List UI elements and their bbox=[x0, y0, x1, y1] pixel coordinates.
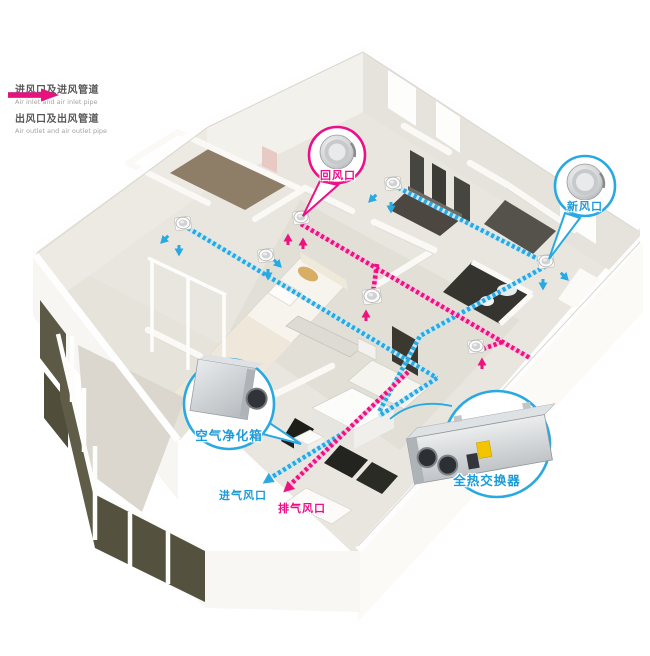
label-air-purifier-box: 空气净化箱 bbox=[195, 425, 263, 444]
legend-outlet-label-zh: 出风口及出风管道 bbox=[15, 115, 107, 126]
legend-outlet-label-en: Air outlet and air outlet pipe bbox=[15, 128, 107, 135]
supply-vent-icon bbox=[174, 216, 192, 231]
supply-vent-icon bbox=[384, 176, 402, 191]
label-return-air-vent: 回风口 bbox=[320, 167, 356, 183]
pink-arrow-icon bbox=[8, 88, 60, 102]
diffuser-icon bbox=[320, 135, 355, 169]
diffuser-icon bbox=[567, 164, 604, 200]
label-heat-exchanger: 全热交换器 bbox=[453, 470, 521, 489]
return-vent-icon bbox=[467, 339, 485, 354]
supply-vent-icon bbox=[257, 248, 275, 263]
legend-item-air-outlet: 出风口及出风管道 Air outlet and air outlet pipe bbox=[8, 115, 107, 134]
ventilation-diagram: 进风口及进风管道 Air inlet and air inlet pipe 出风… bbox=[0, 0, 650, 656]
balcony-glass-front bbox=[95, 494, 205, 602]
legend: 进风口及进风管道 Air inlet and air inlet pipe 出风… bbox=[8, 86, 107, 145]
return-vent-icon bbox=[362, 288, 382, 305]
label-intake-vent: 进气风口 bbox=[219, 487, 267, 503]
label-exhaust-vent: 排气风口 bbox=[278, 500, 326, 516]
label-fresh-air-vent: 新风口 bbox=[567, 198, 603, 214]
